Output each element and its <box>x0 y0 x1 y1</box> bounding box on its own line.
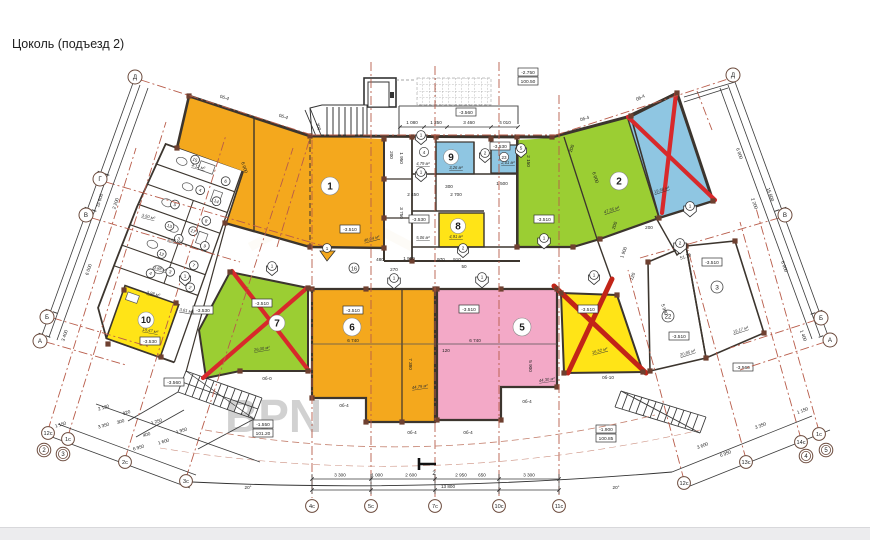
svg-text:16: 16 <box>351 267 357 273</box>
svg-text:В: В <box>84 212 88 219</box>
svg-text:-3.560: -3.560 <box>167 380 181 386</box>
svg-text:50: 50 <box>461 264 467 269</box>
svg-text:14с: 14с <box>796 440 805 446</box>
svg-text:15 600: 15 600 <box>766 187 776 202</box>
svg-text:-3.560: -3.560 <box>736 365 750 371</box>
svg-text:970: 970 <box>437 257 445 262</box>
svg-text:300: 300 <box>445 184 453 189</box>
svg-text:11с: 11с <box>555 504 564 510</box>
svg-text:1: 1 <box>271 264 274 269</box>
svg-text:-3.530: -3.530 <box>493 144 507 150</box>
svg-text:15 600: 15 600 <box>95 193 104 208</box>
svg-text:1с: 1с <box>816 432 822 438</box>
svg-text:20°: 20° <box>613 485 620 490</box>
svg-text:1: 1 <box>393 276 396 281</box>
svg-text:2: 2 <box>432 471 436 477</box>
svg-text:13с: 13с <box>741 460 750 466</box>
svg-text:0б-0: 0б-0 <box>262 376 272 381</box>
svg-text:6: 6 <box>349 323 355 334</box>
svg-text:300: 300 <box>116 418 125 425</box>
svg-text:0б-4: 0б-4 <box>407 430 417 435</box>
svg-text:3 460: 3 460 <box>463 120 475 125</box>
svg-text:-1.550: -1.550 <box>256 422 270 428</box>
svg-text:3с: 3с <box>183 479 189 485</box>
svg-text:2 200: 2 200 <box>111 197 119 210</box>
svg-text:3: 3 <box>715 285 719 292</box>
svg-text:-3.510: -3.510 <box>346 308 360 314</box>
svg-text:20°: 20° <box>245 485 252 490</box>
svg-text:101.20: 101.20 <box>256 431 271 437</box>
svg-text:100.85: 100.85 <box>599 436 614 442</box>
svg-text:-3.530: -3.530 <box>143 339 157 345</box>
svg-text:3 350: 3 350 <box>97 421 110 429</box>
svg-text:0б-4: 0б-4 <box>463 430 473 435</box>
svg-text:2: 2 <box>484 151 487 156</box>
svg-text:4,79 м²: 4,79 м² <box>416 161 430 166</box>
svg-text:0б-4: 0б-4 <box>635 93 646 102</box>
svg-text:Б: Б <box>819 315 823 322</box>
svg-text:1с: 1с <box>65 437 71 443</box>
svg-text:В: В <box>783 212 787 219</box>
svg-text:1 150: 1 150 <box>796 406 809 415</box>
svg-text:2 150: 2 150 <box>526 155 531 167</box>
svg-text:1: 1 <box>481 275 484 280</box>
svg-text:-3.510: -3.510 <box>343 227 357 233</box>
svg-text:-3.530: -3.530 <box>412 217 426 223</box>
svg-text:120: 120 <box>442 348 450 353</box>
svg-text:6 000: 6 000 <box>780 260 789 273</box>
svg-text:12с: 12с <box>43 431 52 437</box>
svg-text:3 300: 3 300 <box>334 473 346 478</box>
svg-text:4с: 4с <box>309 504 315 510</box>
svg-text:1 950: 1 950 <box>403 256 415 261</box>
svg-text:4,91 м²: 4,91 м² <box>449 234 463 239</box>
svg-text:1 950: 1 950 <box>175 426 188 434</box>
svg-text:1 250: 1 250 <box>430 120 442 125</box>
svg-text:1 900: 1 900 <box>619 246 628 259</box>
svg-text:1 600: 1 600 <box>157 437 170 445</box>
svg-text:-3.530: -3.530 <box>196 308 210 314</box>
svg-text:2,01 м²: 2,01 м² <box>500 160 515 165</box>
svg-text:-3.510: -3.510 <box>581 307 595 313</box>
svg-text:200: 200 <box>645 225 653 230</box>
svg-text:3,26 м²: 3,26 м² <box>449 165 463 170</box>
svg-text:3 400: 3 400 <box>60 329 68 342</box>
svg-text:7 380: 7 380 <box>408 358 413 370</box>
svg-text:1 150: 1 150 <box>54 420 67 428</box>
svg-text:1 950: 1 950 <box>399 152 404 164</box>
svg-text:3 600: 3 600 <box>696 441 709 450</box>
svg-text:2 700: 2 700 <box>450 192 462 197</box>
svg-text:2 950: 2 950 <box>455 473 467 478</box>
svg-text:-3.510: -3.510 <box>255 301 269 307</box>
svg-text:1: 1 <box>593 273 596 278</box>
svg-text:0б-4: 0б-4 <box>278 113 289 121</box>
svg-text:-3.510: -3.510 <box>537 217 551 223</box>
svg-text:0б-4: 0б-4 <box>522 399 532 404</box>
svg-text:0б-4: 0б-4 <box>219 94 230 102</box>
svg-text:-2.750: -2.750 <box>521 70 535 76</box>
svg-text:650: 650 <box>478 473 486 478</box>
svg-text:2с: 2с <box>122 460 128 466</box>
svg-text:10: 10 <box>141 315 151 325</box>
svg-text:5,06 м²: 5,06 м² <box>416 235 430 240</box>
svg-text:10с: 10с <box>494 504 503 510</box>
svg-text:6 950: 6 950 <box>719 449 732 458</box>
svg-text:1: 1 <box>327 182 333 193</box>
svg-text:-3.510: -3.510 <box>705 260 719 266</box>
svg-text:1: 1 <box>543 236 546 241</box>
svg-text:4 010: 4 010 <box>499 120 511 125</box>
svg-text:8: 8 <box>455 222 461 233</box>
svg-text:3 750: 3 750 <box>399 207 404 219</box>
svg-text:7: 7 <box>274 319 280 330</box>
svg-text:2: 2 <box>679 241 682 246</box>
svg-text:5: 5 <box>520 146 523 151</box>
svg-text:270: 270 <box>390 267 398 272</box>
svg-text:2 450: 2 450 <box>407 192 419 197</box>
svg-text:200: 200 <box>389 151 394 159</box>
svg-text:2: 2 <box>616 177 622 188</box>
svg-text:1 250: 1 250 <box>150 417 163 425</box>
svg-text:3 300: 3 300 <box>523 473 535 478</box>
svg-text:6 740: 6 740 <box>347 338 359 343</box>
svg-text:2 200: 2 200 <box>750 197 759 210</box>
svg-text:0б-4: 0б-4 <box>579 115 590 122</box>
svg-text:2: 2 <box>462 246 465 251</box>
svg-text:1: 1 <box>420 133 423 138</box>
svg-text:920: 920 <box>122 409 131 416</box>
svg-text:4: 4 <box>423 150 426 155</box>
svg-text:1 000: 1 000 <box>371 473 383 478</box>
svg-text:1 400: 1 400 <box>799 329 808 342</box>
svg-text:5 900: 5 900 <box>528 360 533 372</box>
svg-text:1: 1 <box>689 204 692 209</box>
svg-text:1 500: 1 500 <box>496 181 508 186</box>
svg-text:1: 1 <box>326 246 329 251</box>
svg-text:1 080: 1 080 <box>406 120 418 125</box>
svg-text:2 130: 2 130 <box>97 403 110 411</box>
svg-text:6 740: 6 740 <box>469 338 481 343</box>
svg-text:5с: 5с <box>368 504 374 510</box>
svg-text:-3.510: -3.510 <box>672 334 686 340</box>
svg-text:0б-10: 0б-10 <box>602 375 614 380</box>
svg-text:6 950: 6 950 <box>132 443 145 451</box>
svg-text:2 600: 2 600 <box>405 473 417 478</box>
svg-text:22: 22 <box>665 315 672 321</box>
svg-text:-3.560: -3.560 <box>459 110 473 116</box>
svg-text:-1.900: -1.900 <box>599 427 613 433</box>
svg-text:1: 1 <box>184 274 187 279</box>
svg-text:7с: 7с <box>432 504 438 510</box>
svg-text:12с: 12с <box>679 481 688 487</box>
svg-text:910: 910 <box>453 257 461 262</box>
svg-text:1: 1 <box>420 170 423 175</box>
svg-text:0б-4: 0б-4 <box>339 403 349 408</box>
svg-text:480: 480 <box>376 257 384 262</box>
svg-text:6 000: 6 000 <box>84 263 92 276</box>
svg-text:5: 5 <box>519 323 525 334</box>
svg-text:-3.510: -3.510 <box>462 307 476 313</box>
svg-text:9: 9 <box>448 153 454 164</box>
svg-text:100.50: 100.50 <box>521 79 536 85</box>
svg-text:400: 400 <box>142 431 151 438</box>
svg-text:120: 120 <box>629 272 636 281</box>
svg-text:3 350: 3 350 <box>754 421 767 430</box>
svg-text:Б: Б <box>45 314 49 321</box>
